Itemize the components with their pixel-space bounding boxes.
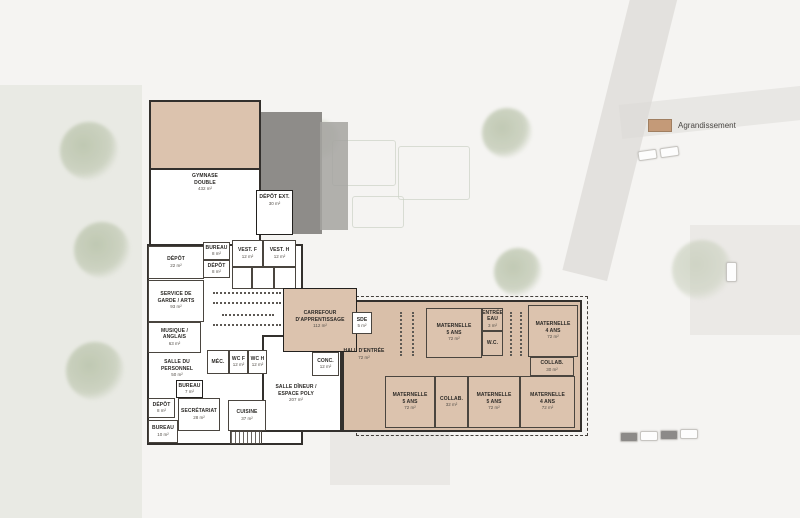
room-area: 63 m² [161, 341, 188, 347]
room-area: 32 m² [440, 402, 463, 408]
lockers-row [213, 324, 281, 326]
legend-label: Agrandissement [678, 121, 736, 130]
room-label: MATERNELLE 4 ANS [530, 392, 565, 405]
legend-swatch [648, 119, 672, 132]
room-label: MATERNELLE 5 ANS [393, 392, 428, 405]
room-salle-personnel: SALLE DU PERSONNEL 50 m² [150, 359, 204, 378]
room-carrefour: CARREFOUR D'APPRENTISSAGE 112 m² [283, 288, 357, 352]
playground-court [398, 146, 470, 200]
room-area: 72 m² [336, 355, 392, 361]
utility-cell [274, 267, 296, 289]
room-depot-ext: DÉPÔT EXT. 30 m² [256, 190, 293, 235]
room-label: CUISINE [237, 409, 258, 416]
room-maternelle-5ans-b: MATERNELLE 5 ANS 72 m² [385, 376, 435, 428]
room-area: 10 m² [152, 432, 174, 438]
room-hall: HALL D'ENTRÉE 72 m² [336, 348, 392, 361]
room-area: 12 m² [232, 362, 245, 368]
room-label: MATERNELLE 5 ANS [437, 323, 472, 336]
room-label: COLLAB. [541, 360, 564, 367]
room-area: 30 m² [541, 367, 564, 373]
room-area: 432 m² [162, 186, 248, 192]
lockers-row [213, 292, 281, 294]
room-label: MATERNELLE 4 ANS [536, 321, 571, 334]
lockers-row [213, 302, 281, 304]
tree [66, 342, 124, 400]
existing-roof-light [320, 122, 348, 230]
room-label: SERVICE DE GARDE / ARTS [158, 291, 195, 304]
room-salle-dineur: SALLE DÎNEUR / ESPACE POLY 207 m² [266, 384, 326, 403]
room-label: BUREAU [152, 425, 174, 432]
room-area: 112 m² [295, 323, 344, 329]
room-wc-h: WC H 12 m² [248, 350, 267, 374]
room-label: MÉC. [212, 359, 225, 366]
room-area: 72 m² [477, 405, 512, 411]
room-label: HALL D'ENTRÉE [336, 348, 392, 355]
room-label: MUSIQUE / ANGLAIS [161, 328, 188, 341]
room-vest-f: VEST. F 12 m² [232, 240, 263, 267]
room-area: 12 m² [270, 254, 290, 260]
playground-court [352, 196, 404, 228]
room-label: DÉPÔT [167, 256, 185, 263]
tree [74, 222, 130, 278]
room-label: CARREFOUR D'APPRENTISSAGE [295, 310, 344, 323]
room-label: VEST. H [270, 247, 290, 254]
room-area: 12 m² [238, 254, 257, 260]
utility-cell [232, 267, 252, 289]
room-area: 30 m² [259, 201, 289, 207]
room-depot-8a: DÉPÔT 8 m² [203, 260, 230, 278]
room-area: 72 m² [530, 405, 565, 411]
room-maternelle-5ans-a: MATERNELLE 5 ANS 72 m² [426, 308, 482, 358]
room-vest-h: VEST. H 12 m² [263, 240, 296, 267]
site-plan: GYMNASE DOUBLE 432 m² DÉPÔT EXT. 30 m² D… [0, 0, 800, 518]
lockers-column [400, 312, 402, 356]
room-maternelle-4ans-a: MATERNELLE 4 ANS 72 m² [528, 305, 578, 357]
utility-cell [252, 267, 274, 289]
room-collab-30: COLLAB. 30 m² [530, 357, 574, 376]
room-entree-eau: ENTRÉE EAU 3 m² [482, 308, 503, 331]
room-bureau-10: BUREAU 10 m² [148, 420, 178, 443]
tree [60, 122, 118, 180]
room-area: 50 m² [150, 372, 204, 378]
room-area: 7 m² [179, 389, 201, 395]
room-label: ENTRÉE EAU [482, 310, 503, 323]
room-area: 12 m² [317, 364, 334, 370]
tree [494, 248, 542, 296]
room-gymnase: GYMNASE DOUBLE 432 m² [162, 173, 248, 192]
room-area: 8 m² [153, 408, 171, 414]
car [680, 429, 698, 439]
lockers-column [510, 312, 512, 356]
car [640, 431, 658, 441]
room-area: 72 m² [536, 334, 571, 340]
lockers-column [520, 312, 522, 356]
room-label: W.C. [487, 340, 498, 347]
room-sde: SDE 5 m² [352, 312, 372, 334]
room-musique: MUSIQUE / ANGLAIS 63 m² [148, 322, 201, 353]
room-area: 8 m² [208, 269, 226, 275]
room-area: 93 m² [158, 304, 195, 310]
room-area: 22 m² [167, 263, 185, 269]
room-area: 8 m² [206, 251, 228, 257]
lockers-column [412, 312, 414, 356]
room-maternelle-4ans-b: MATERNELLE 4 ANS 72 m² [520, 376, 575, 428]
car [726, 262, 737, 282]
room-area: 28 m² [181, 415, 217, 421]
entrance-stairs [230, 431, 262, 444]
room-area: 207 m² [266, 397, 326, 403]
room-area: 72 m² [437, 336, 472, 342]
room-conc: CONC. 12 m² [312, 352, 339, 376]
legend: Agrandissement [648, 119, 736, 132]
tree [482, 108, 532, 158]
room-mec: MÉC. [207, 350, 229, 374]
room-maternelle-5ans-c: MATERNELLE 5 ANS 72 m² [468, 376, 520, 428]
room-label: SECRÉTARIAT [181, 408, 217, 415]
room-area: 37 m² [237, 416, 258, 422]
room-label: SALLE DÎNEUR / ESPACE POLY [266, 384, 326, 397]
room-label: MATERNELLE 5 ANS [477, 392, 512, 405]
room-label: VEST. F [238, 247, 257, 254]
room-bureau-8: BUREAU 8 m² [203, 242, 230, 260]
room-area: 12 m² [251, 362, 265, 368]
car [660, 430, 678, 440]
room-collab-32: COLLAB. 32 m² [435, 376, 468, 428]
room-wc-f: WC F 12 m² [229, 350, 248, 374]
room-area: 72 m² [393, 405, 428, 411]
car [637, 149, 657, 162]
tree [672, 240, 732, 300]
room-wc-small: W.C. [482, 331, 503, 356]
room-area: 5 m² [357, 323, 368, 329]
room-service-garde: SERVICE DE GARDE / ARTS 93 m² [148, 280, 204, 322]
lockers-row [222, 314, 274, 316]
road-right [562, 0, 679, 281]
room-label: SALLE DU PERSONNEL [150, 359, 204, 372]
room-area: 3 m² [482, 323, 503, 329]
car [620, 432, 638, 442]
room-label: DÉPÔT EXT. [259, 194, 289, 201]
room-cuisine: CUISINE 37 m² [228, 400, 266, 431]
gym-extension-slab [149, 100, 261, 170]
room-label: GYMNASE DOUBLE [162, 173, 248, 186]
car [659, 146, 679, 159]
room-depot-8b: DÉPÔT 8 m² [148, 398, 175, 418]
room-depot-22: DÉPÔT 22 m² [148, 246, 204, 279]
room-bureau-7: BUREAU 7 m² [176, 380, 203, 398]
room-secretariat: SECRÉTARIAT 28 m² [178, 398, 220, 431]
